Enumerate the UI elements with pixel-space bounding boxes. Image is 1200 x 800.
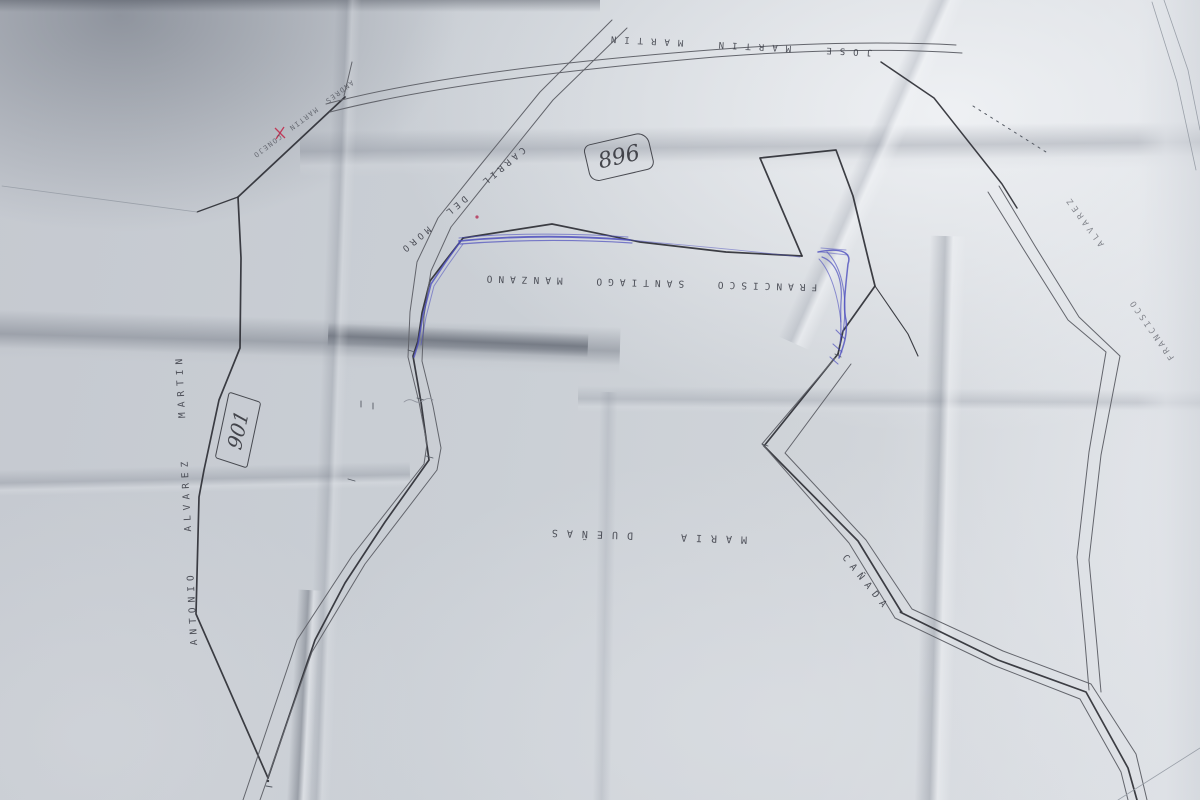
road-carril-east-line: [260, 28, 627, 800]
road-canada-west-line: [762, 358, 1128, 800]
road-carril-west-line: [243, 20, 612, 800]
boundary-northeast-fold: [881, 62, 1017, 208]
paper-map-photo: JOSE MARTIN MARTIN ANDRES MARTIN CONEJO …: [0, 0, 1200, 800]
boundary-west-stub: [197, 197, 238, 212]
roads: [243, 20, 1147, 800]
survey-ticks: [266, 350, 902, 787]
boundary-central-parcel-west: [268, 238, 463, 778]
faint-line-left: [2, 186, 197, 212]
boundary-central-parcel-southeast: [764, 354, 1137, 800]
road-east-east-line: [999, 186, 1120, 692]
faint-line-right-edge-2: [1164, 0, 1200, 130]
survey-dashes: [973, 106, 1046, 152]
faint-line-right-edge-1: [1152, 2, 1196, 170]
parcel-boundaries: [196, 62, 1137, 800]
parcel-number-901: 901: [223, 408, 254, 453]
road-top-south-line: [330, 50, 962, 112]
red-dot-on-road: [475, 215, 478, 218]
road-east-west-line: [988, 192, 1106, 690]
boundary-neck-apex-tie: [875, 286, 918, 356]
blue-pen-annotations: [414, 234, 849, 364]
parcel-number-896: 896: [596, 140, 643, 174]
